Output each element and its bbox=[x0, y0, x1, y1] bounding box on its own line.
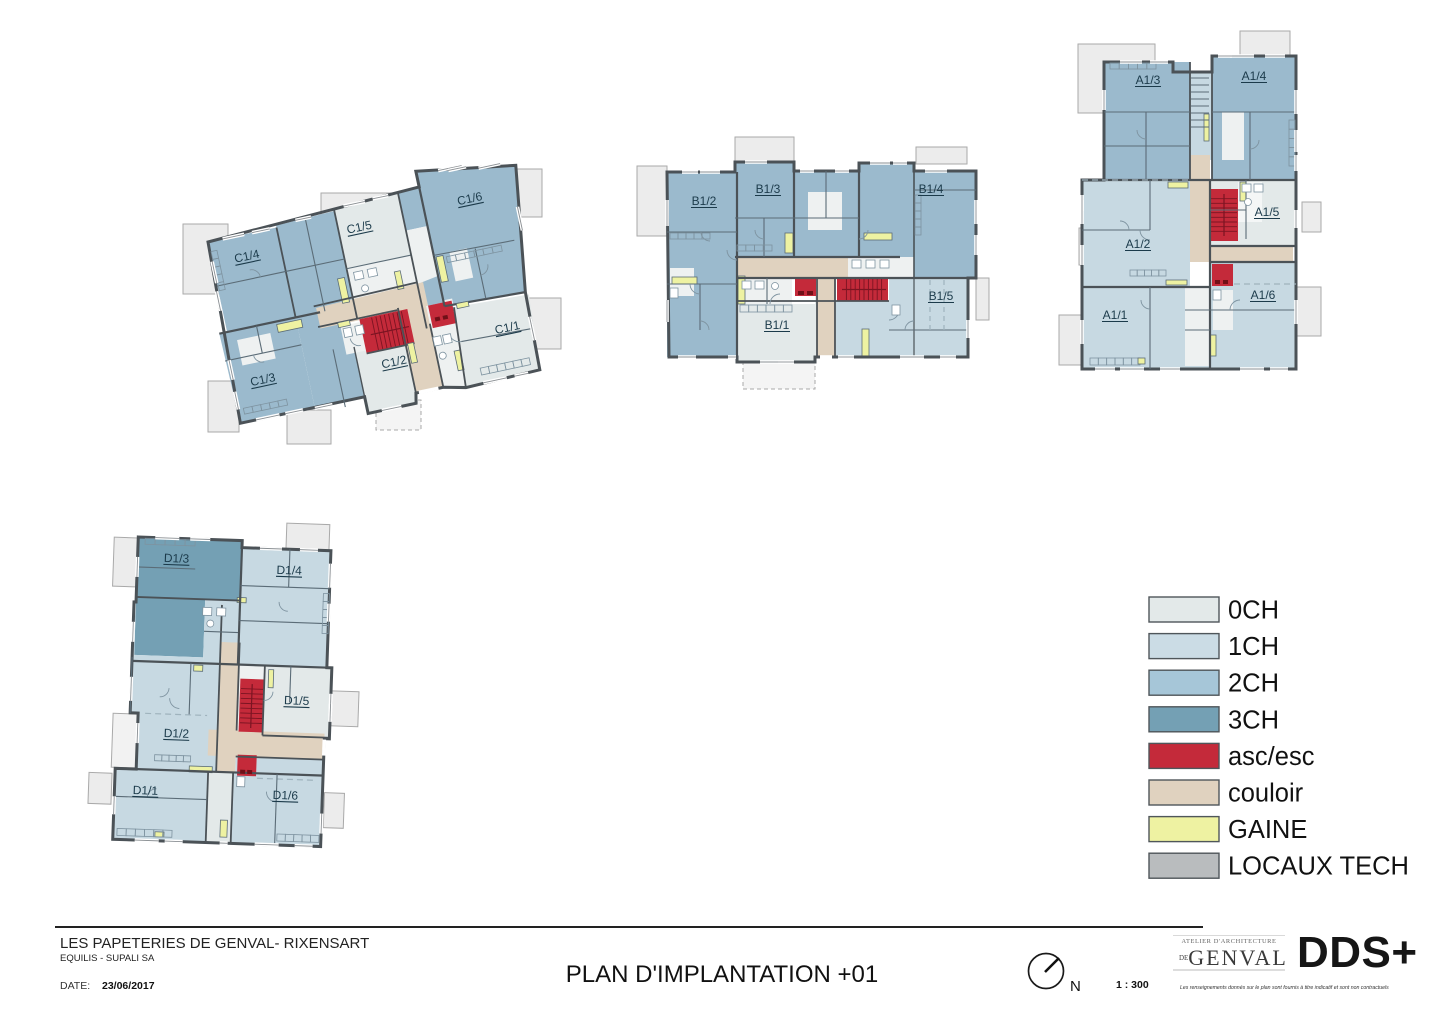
svg-text:1CH: 1CH bbox=[1228, 633, 1279, 661]
svg-text:A1/2: A1/2 bbox=[1126, 237, 1151, 251]
svg-text:EQUILIS - SUPALI SA: EQUILIS - SUPALI SA bbox=[60, 953, 155, 964]
svg-text:D1/3: D1/3 bbox=[164, 551, 190, 566]
svg-text:B1/1: B1/1 bbox=[765, 318, 790, 332]
svg-text:2CH: 2CH bbox=[1228, 670, 1279, 698]
svg-text:PLAN D'IMPLANTATION +01: PLAN D'IMPLANTATION +01 bbox=[566, 961, 878, 988]
svg-text:D1/2: D1/2 bbox=[164, 726, 190, 741]
svg-text:D1/5: D1/5 bbox=[284, 693, 310, 708]
svg-text:B1/5: B1/5 bbox=[929, 289, 954, 303]
svg-text:N: N bbox=[1070, 978, 1081, 995]
svg-text:Les renseignements donnés sur: Les renseignements donnés sur le plan so… bbox=[1180, 985, 1389, 991]
svg-text:asc/esc: asc/esc bbox=[1228, 743, 1315, 771]
svg-text:A1/3: A1/3 bbox=[1136, 73, 1161, 87]
svg-text:B1/3: B1/3 bbox=[756, 182, 781, 196]
svg-text:A1/5: A1/5 bbox=[1255, 205, 1280, 219]
svg-text:DE: DE bbox=[1179, 954, 1188, 962]
svg-text:D1/6: D1/6 bbox=[272, 788, 298, 803]
svg-text:GENVAL: GENVAL bbox=[1188, 945, 1288, 970]
svg-text:A1/1: A1/1 bbox=[1103, 308, 1128, 322]
svg-text:LOCAUX TECH: LOCAUX TECH bbox=[1228, 853, 1409, 881]
svg-text:B1/2: B1/2 bbox=[692, 194, 717, 208]
svg-text:D1/4: D1/4 bbox=[276, 563, 302, 578]
svg-text:D1/1: D1/1 bbox=[133, 783, 159, 798]
svg-text:3CH: 3CH bbox=[1228, 706, 1279, 734]
svg-text:0CH: 0CH bbox=[1228, 597, 1279, 625]
svg-text:couloir: couloir bbox=[1228, 780, 1304, 808]
svg-text:LES PAPETERIES DE GENVAL- RIXE: LES PAPETERIES DE GENVAL- RIXENSART bbox=[60, 935, 369, 952]
svg-text:A1/4: A1/4 bbox=[1242, 69, 1267, 83]
svg-text:A1/6: A1/6 bbox=[1251, 288, 1276, 302]
svg-text:23/06/2017: 23/06/2017 bbox=[102, 980, 155, 992]
svg-text:DATE:: DATE: bbox=[60, 980, 90, 992]
svg-text:DDS+: DDS+ bbox=[1297, 928, 1418, 977]
svg-text:1 : 300: 1 : 300 bbox=[1116, 979, 1149, 991]
svg-text:B1/4: B1/4 bbox=[919, 182, 944, 196]
svg-text:ATELIER D'ARCHITECTURE: ATELIER D'ARCHITECTURE bbox=[1181, 938, 1276, 945]
svg-text:GAINE: GAINE bbox=[1228, 816, 1307, 844]
